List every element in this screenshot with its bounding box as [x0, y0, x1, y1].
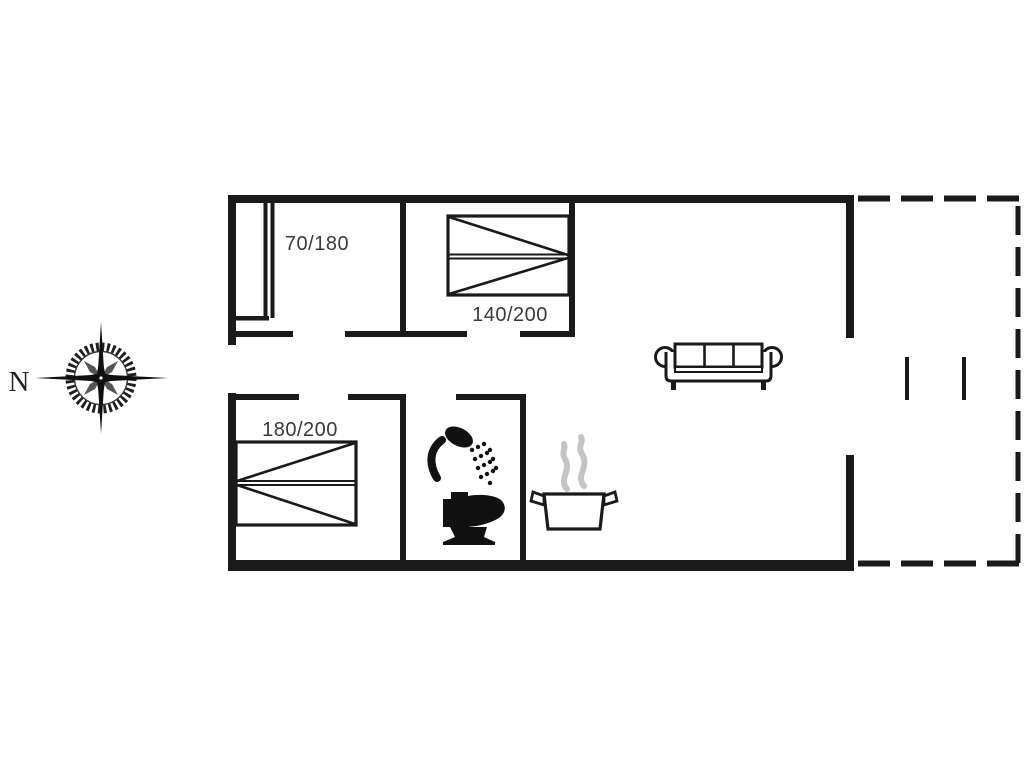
shower-head [442, 422, 477, 452]
wall-upper-row-a [228, 331, 293, 337]
shower-icon [431, 422, 498, 485]
sofa-cushions [675, 344, 762, 367]
wall-upper-row-c [520, 331, 575, 337]
wall-left-upper [228, 195, 236, 345]
wall-bathroom-kitchen-divider [520, 394, 526, 560]
wall-lower-row-b [348, 394, 406, 400]
terrace-door-mark-right [962, 357, 966, 400]
sofa-front-band [675, 367, 762, 372]
compass-north-label: N [9, 366, 30, 398]
toilet-bowl [468, 495, 505, 527]
terrace-door-mark-left [905, 357, 909, 400]
cooking-pot-icon [531, 492, 617, 529]
toilet-tank [443, 492, 468, 527]
bed-small-label: 70/180 [285, 233, 349, 255]
wall-lower-row-a [228, 394, 299, 400]
pot-handle-left [531, 492, 544, 505]
master-bed-icon [236, 442, 356, 525]
pot-handle-right [604, 492, 617, 505]
wall-right-upper [846, 195, 854, 338]
single-bed-edge-line-2 [271, 199, 275, 318]
toilet-base [443, 527, 495, 545]
single-bed-foot-line [236, 316, 269, 321]
wall-right-lower [846, 455, 854, 571]
floor-plan-drawing: N [0, 0, 1024, 768]
double-bed-icon [448, 216, 569, 295]
wall-top [228, 195, 854, 203]
steam-wisp-left [563, 444, 567, 489]
terrace-outline [858, 199, 1021, 567]
master-bed-outline [236, 442, 356, 525]
steam-icon [563, 437, 584, 489]
shower-spray-dots [470, 442, 498, 485]
compass-rose-icon: N [9, 322, 168, 434]
floor-plan-page: N [0, 0, 1024, 768]
pot-body [544, 494, 604, 529]
wall-closet-bedroom-divider [400, 195, 406, 337]
wall-bottom [228, 560, 854, 571]
compass-center-dot [99, 376, 102, 379]
single-bed-edge-line-1 [264, 199, 268, 318]
toilet-icon [443, 492, 505, 545]
shower-hose [431, 440, 442, 478]
wall-bathroom-top [456, 394, 526, 400]
bed-master-label: 180/200 [262, 419, 338, 441]
wall-masterbed-bathroom-divider [400, 394, 406, 560]
sofa-icon [656, 344, 782, 390]
single-bed-icon [236, 199, 275, 321]
bed-double-label: 140/200 [472, 304, 548, 326]
steam-wisp-right [580, 437, 584, 486]
